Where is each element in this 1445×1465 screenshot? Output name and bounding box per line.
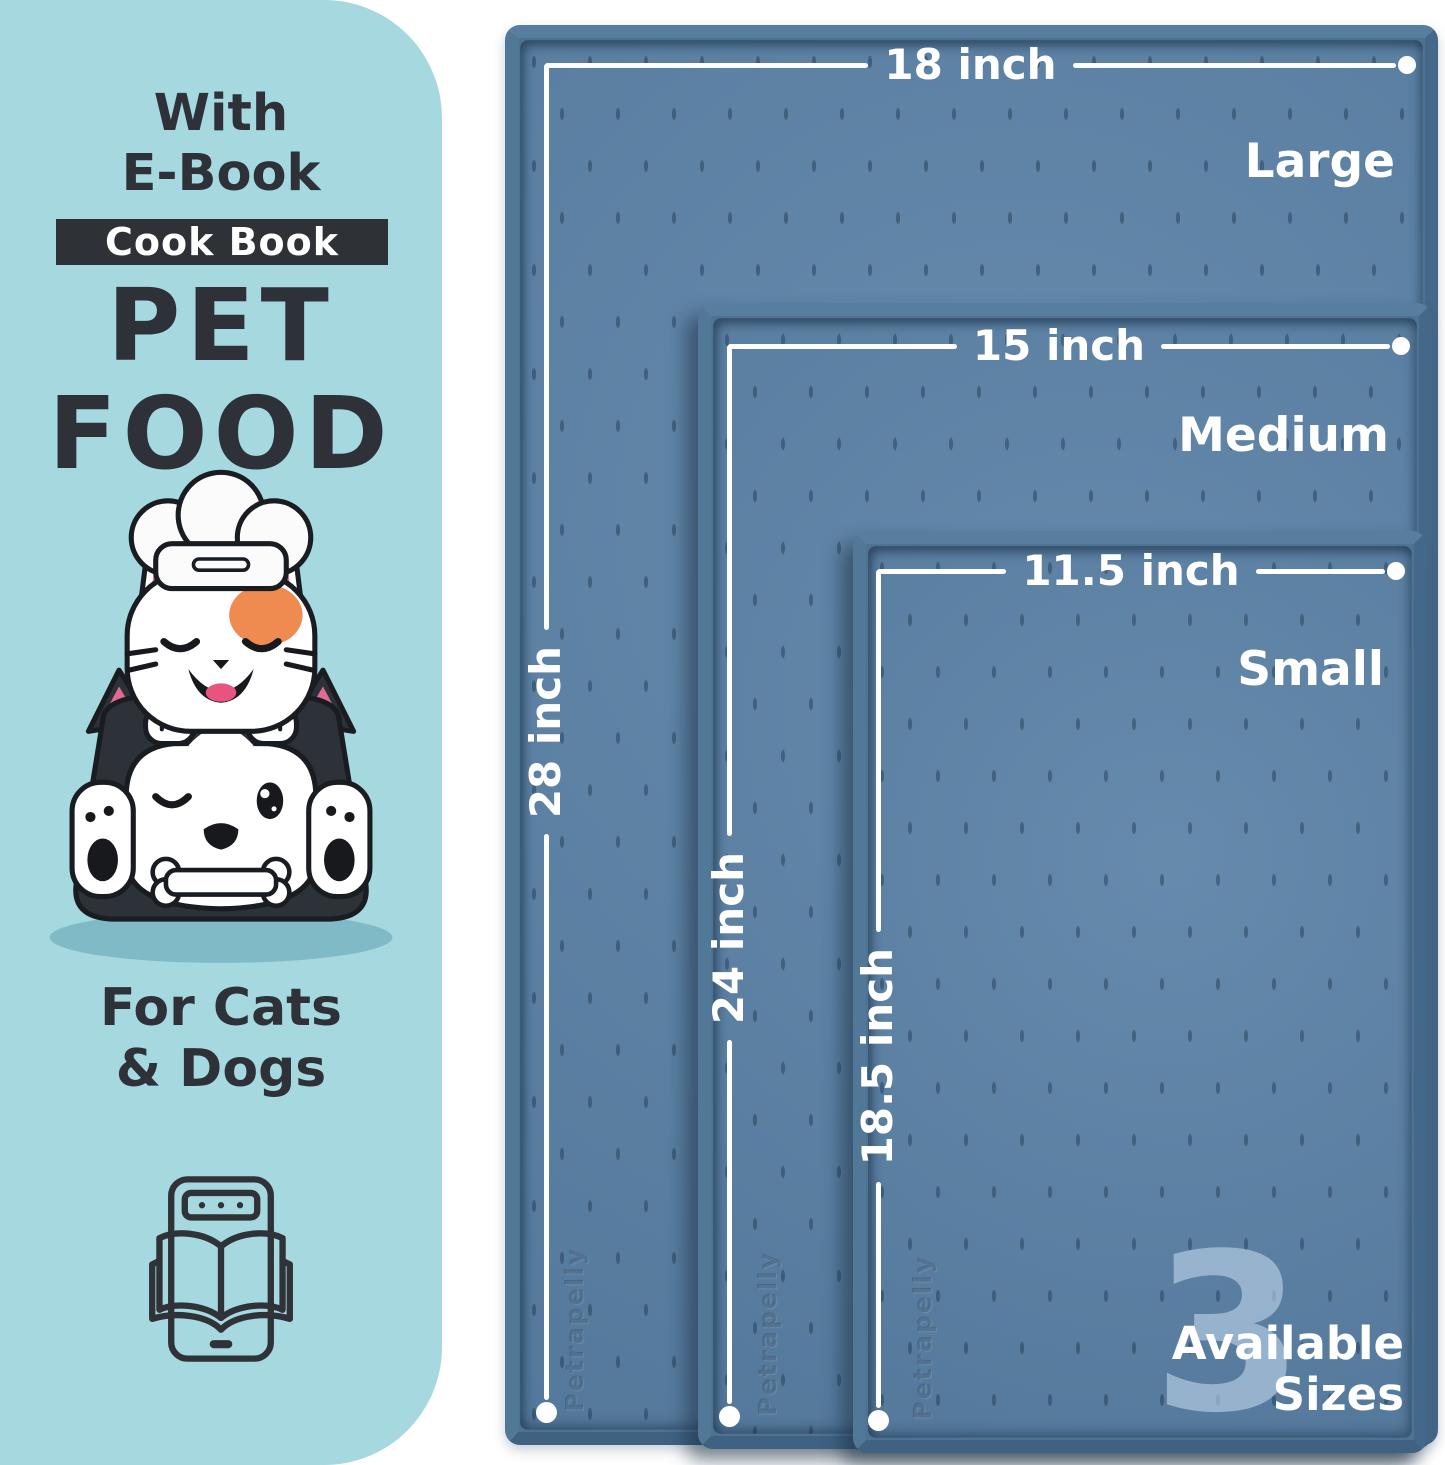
mat-large-width-label: 18 inch: [868, 44, 1072, 86]
embossed-brand-watermark: Petrapelly: [908, 1255, 937, 1420]
ruler-endpoint-dot: [1387, 562, 1405, 580]
mat-small-width-ruler: 11.5 inch: [877, 548, 1405, 594]
mat-medium-width-ruler: 15 inch: [728, 323, 1410, 369]
ruler-endpoint-dot: [1392, 337, 1410, 355]
for-cats-dogs-line2: & Dogs: [0, 1039, 442, 1100]
embossed-brand-watermark: Petrapelly: [753, 1251, 782, 1416]
ruler-line: [876, 570, 881, 932]
ebook-tablet-icon: [135, 1168, 307, 1370]
mat-medium-size-name: Medium: [1178, 408, 1389, 463]
ebook-title: With E-Book: [0, 84, 442, 203]
available-sizes-line1: Available: [1172, 1319, 1404, 1369]
mat-large-size-name: Large: [1245, 134, 1395, 189]
pet-food-heading: PET FOOD: [0, 272, 442, 488]
mat-small-height-label: 18.5 inch: [857, 932, 899, 1181]
mat-medium-width-label: 15 inch: [957, 325, 1161, 367]
mat-large-height-label: 28 inch: [525, 630, 567, 834]
ruler-line: [877, 569, 1006, 574]
mat-small-size-name: Small: [1237, 642, 1384, 697]
product-infographic: With E-Book Cook Book PET FOOD: [0, 0, 1445, 1465]
cook-book-badge-label: Cook Book: [105, 220, 339, 264]
ruler-line: [728, 344, 957, 349]
ruler-line: [1256, 569, 1385, 574]
ruler-line: [544, 64, 549, 630]
ruler-endpoint-dot: [868, 1410, 889, 1431]
mat-small-width-label: 11.5 inch: [1006, 550, 1255, 592]
mat-small-height-ruler: 18.5 inch: [866, 570, 890, 1431]
mat-medium-height-ruler: 24 inch: [717, 345, 741, 1427]
for-cats-dogs-text: For Cats & Dogs: [0, 978, 442, 1101]
mat-large-width-ruler: 18 inch: [545, 42, 1416, 88]
cook-book-badge: Cook Book: [56, 219, 388, 265]
ruler-line: [1073, 63, 1396, 68]
ruler-endpoint-dot: [719, 1406, 740, 1427]
ruler-endpoint-dot: [1398, 56, 1416, 74]
mat-large-height-ruler: 28 inch: [534, 64, 558, 1423]
mat-small: 11.5 inch 18.5 inch Small Petrapelly 3 A…: [853, 531, 1427, 1453]
mat-medium-height-label: 24 inch: [708, 836, 750, 1040]
ruler-line: [544, 834, 549, 1400]
ebook-title-line1: With: [0, 84, 442, 144]
available-sizes-badge: 3 Available Sizes: [1172, 1319, 1404, 1420]
ruler-line: [545, 63, 868, 68]
ruler-line: [876, 1182, 881, 1408]
ruler-line: [727, 345, 732, 836]
ruler-endpoint-dot: [536, 1402, 557, 1423]
ruler-line: [727, 1040, 732, 1404]
ebook-title-line2: E-Book: [0, 144, 442, 204]
pet-food-heading-line1: PET: [0, 272, 442, 380]
available-sizes-line2: Sizes: [1172, 1370, 1404, 1420]
left-info-panel: With E-Book Cook Book PET FOOD: [0, 0, 442, 1465]
for-cats-dogs-line1: For Cats: [0, 978, 442, 1039]
ruler-line: [1161, 344, 1390, 349]
embossed-brand-watermark: Petrapelly: [560, 1247, 589, 1412]
cat-dog-chef-illustration: [25, 458, 417, 968]
